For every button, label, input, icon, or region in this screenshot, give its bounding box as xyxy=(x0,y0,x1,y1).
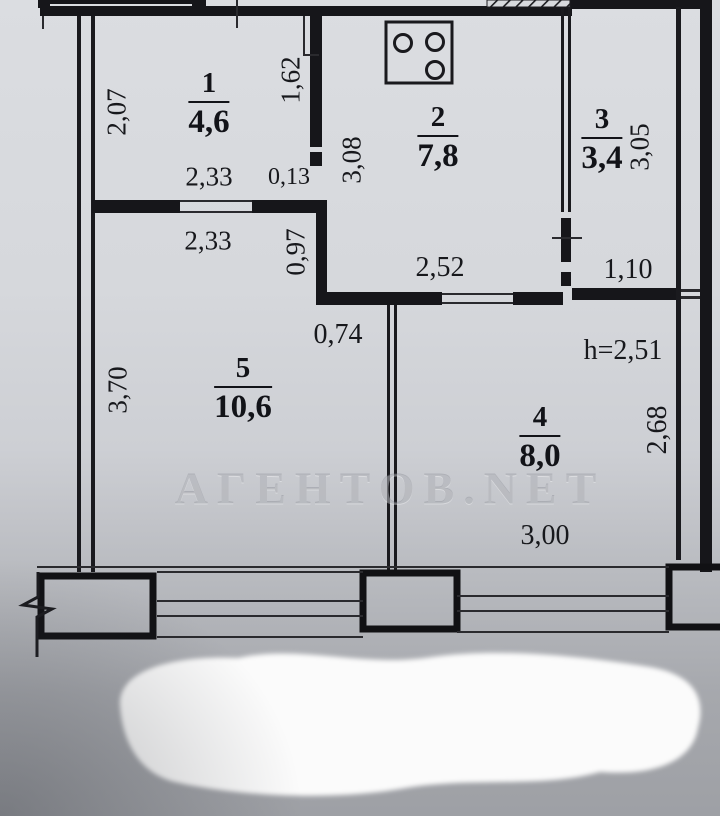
room-underline xyxy=(519,435,560,437)
door-opening-bottom-edge xyxy=(180,211,252,213)
room-label-1: 1 4,6 xyxy=(188,69,229,139)
room-area: 8,0 xyxy=(519,440,560,473)
wall-partition-45-left xyxy=(387,305,390,570)
room-area: 4,6 xyxy=(188,106,229,139)
wall-kitchen-left-upper xyxy=(310,16,322,147)
dim-kitchen-width: 2,52 xyxy=(416,254,465,282)
wall-top-right xyxy=(560,0,712,9)
room-number: 5 xyxy=(214,354,272,383)
wall-left-outer xyxy=(77,16,81,572)
wall-right-inner xyxy=(676,7,681,560)
room-underline xyxy=(417,135,458,137)
pier-middle xyxy=(363,573,457,629)
dimension-extension-line xyxy=(236,0,238,28)
wall-partition-45-right xyxy=(394,305,397,570)
dim-room5-top-width: 2,33 xyxy=(184,228,231,255)
wall-detail-line xyxy=(303,16,305,56)
wall-kitchen-left-lower xyxy=(316,200,327,303)
wall-kitchen-left-stub xyxy=(310,152,322,166)
room-number: 1 xyxy=(188,69,229,98)
wall-room3-bottom xyxy=(572,288,680,300)
dim-room3-height: 3,05 xyxy=(627,123,654,170)
kitchen-door-bottom-edge xyxy=(442,302,513,304)
door-opening-top-edge xyxy=(180,200,252,202)
dim-room4-width: 3,00 xyxy=(521,522,570,550)
wall-room3-left-stub2 xyxy=(561,272,571,286)
room-area: 7,8 xyxy=(417,140,458,173)
wall-room1-bottom-right xyxy=(252,200,322,213)
dim-room5-height: 3,70 xyxy=(105,366,132,413)
wall-connector-top xyxy=(681,289,700,292)
wall-neighbor-line xyxy=(42,0,202,4)
kitchen-door-top-edge xyxy=(442,293,513,295)
wall-room1-bottom-left xyxy=(92,200,180,213)
balcony-line xyxy=(157,615,363,617)
erased-area-blob xyxy=(120,653,701,796)
room-number: 3 xyxy=(581,105,622,134)
wall-left-inner xyxy=(91,16,95,572)
wall-connector-bottom xyxy=(681,296,700,299)
room-label-5: 5 10,6 xyxy=(214,354,272,424)
wall-room3-left-inner xyxy=(568,7,571,212)
stove-icon xyxy=(386,22,452,83)
room-area: 10,6 xyxy=(214,391,272,424)
dim-room1-height: 2,07 xyxy=(104,88,131,135)
room-label-4: 4 8,0 xyxy=(519,403,560,473)
dim-wall-thickness: 0,13 xyxy=(268,165,310,189)
room-label-3: 3 3,4 xyxy=(581,105,622,175)
room-underline xyxy=(188,101,229,103)
dim-kitchen-wall-upper: 1,62 xyxy=(278,56,305,103)
balcony-line xyxy=(457,566,669,568)
hatched-shaft xyxy=(487,0,570,7)
dim-room3-width: 1,10 xyxy=(604,256,653,284)
wall-kitchen-bottom-right xyxy=(513,292,563,305)
room-area: 3,4 xyxy=(581,142,622,175)
pier-left xyxy=(41,576,153,636)
pier-right xyxy=(669,567,720,627)
room-number: 2 xyxy=(417,103,458,132)
dim-room1-width: 2,33 xyxy=(185,164,232,191)
wall-right-outer xyxy=(700,0,712,572)
dim-room4-height: 2,68 xyxy=(644,406,672,455)
floor-plan: АГЕНТОВ.NET 1 4,6 2 7,8 3 3,4 4 8,0 5 10… xyxy=(0,0,720,816)
dim-corridor-height: 0,97 xyxy=(283,228,310,275)
dim-kitchen-height: 3,08 xyxy=(339,136,366,183)
wall-room3-left-stub xyxy=(561,218,571,262)
ceiling-height-note: h=2,51 xyxy=(584,337,663,365)
room3-dimension-tick xyxy=(552,237,582,239)
dimension-tick xyxy=(42,16,44,29)
balcony-line xyxy=(457,595,669,597)
balcony-line xyxy=(157,636,363,638)
room-number: 4 xyxy=(519,403,560,432)
room-underline xyxy=(581,137,622,139)
room-label-2: 2 7,8 xyxy=(417,103,458,173)
balcony-line xyxy=(457,631,669,633)
room-underline xyxy=(214,386,272,388)
balcony-line xyxy=(157,571,363,573)
wall-kitchen-bottom-left xyxy=(316,292,442,305)
dim-corridor-width: 0,74 xyxy=(314,321,363,349)
balcony-line xyxy=(157,600,363,602)
balcony-line xyxy=(457,610,669,612)
wall-room3-left-outer xyxy=(561,7,564,212)
